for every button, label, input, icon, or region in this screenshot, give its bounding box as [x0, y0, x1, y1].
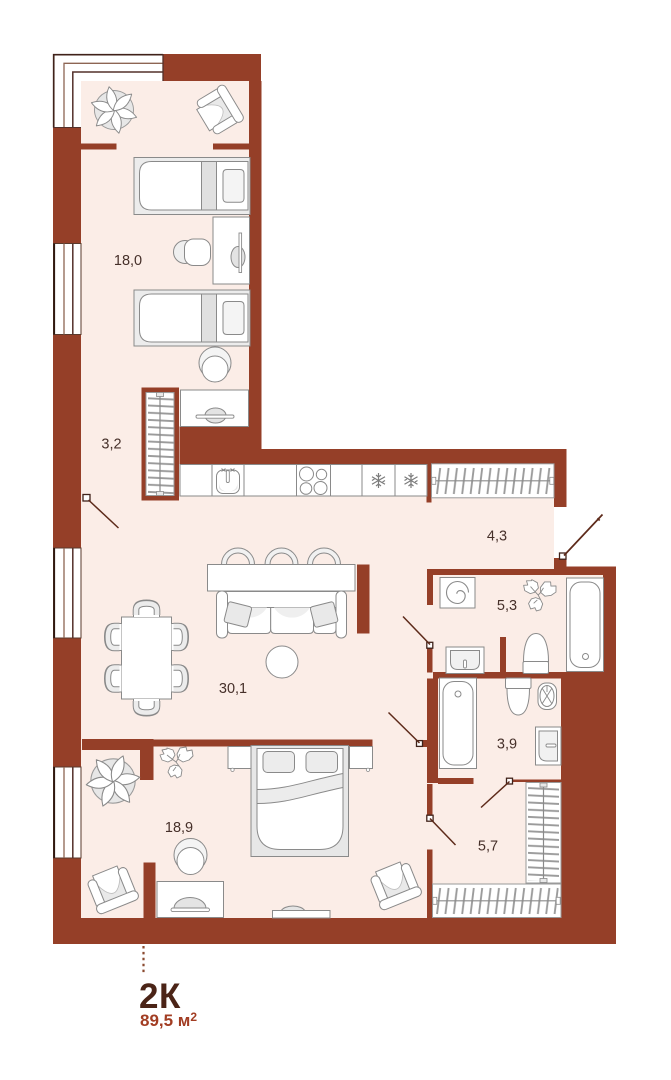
svg-text:18,9: 18,9	[165, 820, 193, 836]
svg-text:3,2: 3,2	[101, 437, 121, 453]
svg-text:4,3: 4,3	[487, 529, 507, 545]
svg-text:18,0: 18,0	[114, 253, 142, 269]
svg-text:5,7: 5,7	[478, 839, 498, 855]
svg-text:5,3: 5,3	[497, 598, 517, 614]
svg-text:30,1: 30,1	[219, 681, 247, 697]
svg-text:3,9: 3,9	[497, 737, 517, 753]
svg-text:89,5 м2: 89,5 м2	[140, 1010, 197, 1030]
